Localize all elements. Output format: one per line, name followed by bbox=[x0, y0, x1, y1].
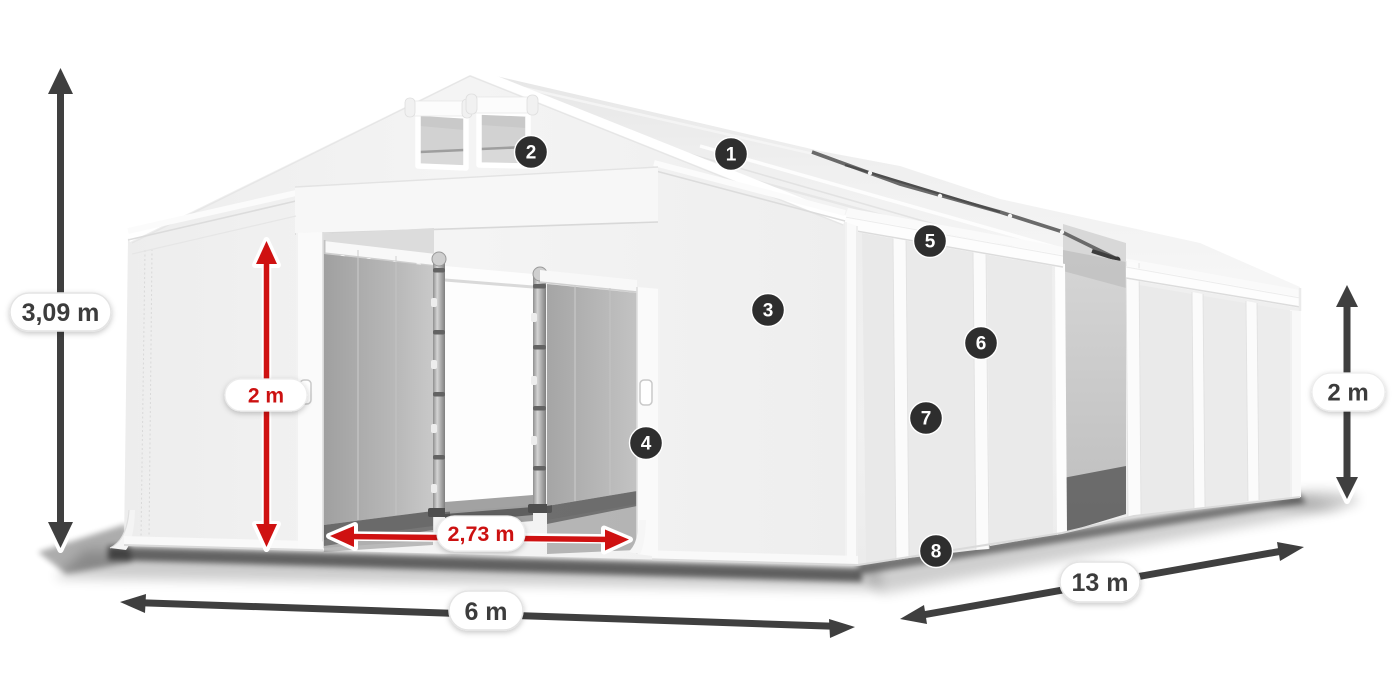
svg-text:3,09 m: 3,09 m bbox=[22, 299, 100, 327]
svg-text:3: 3 bbox=[763, 301, 774, 322]
svg-text:13 m: 13 m bbox=[1072, 569, 1129, 597]
svg-text:7: 7 bbox=[921, 409, 932, 430]
svg-text:6 m: 6 m bbox=[464, 598, 507, 626]
svg-text:2 m: 2 m bbox=[1327, 380, 1368, 407]
svg-text:5: 5 bbox=[925, 232, 936, 253]
svg-text:8: 8 bbox=[931, 542, 942, 563]
svg-text:6: 6 bbox=[976, 334, 987, 355]
svg-text:1: 1 bbox=[726, 145, 737, 166]
svg-text:2: 2 bbox=[526, 143, 537, 164]
svg-text:4: 4 bbox=[641, 434, 652, 455]
svg-text:2,73 m: 2,73 m bbox=[448, 522, 515, 546]
svg-text:2 m: 2 m bbox=[248, 385, 284, 408]
